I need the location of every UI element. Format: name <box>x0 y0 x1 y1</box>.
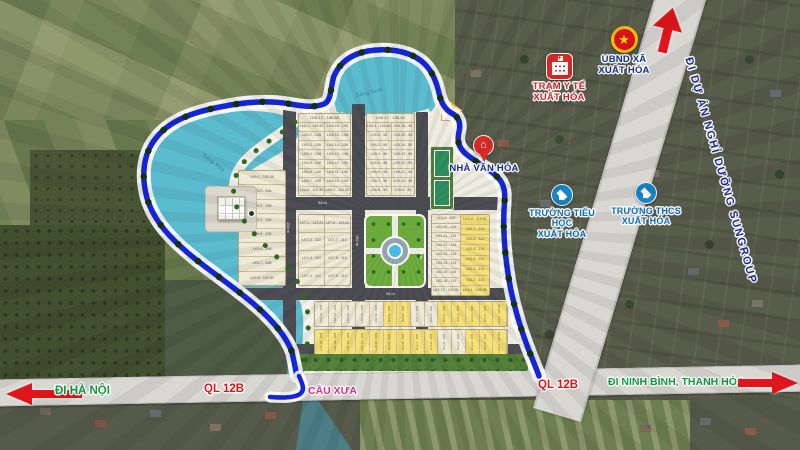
poi-label: NHÀ VĂN HÓA <box>449 164 518 175</box>
poi-label: XUẤT HÓA <box>533 93 586 104</box>
road-label-ql12b-right: QL 12B <box>538 379 578 391</box>
poi-label: XUẤT HÓA <box>598 66 649 77</box>
road-label-di-ha-noi: ĐI HÀ NỘI <box>55 385 110 397</box>
red-dashed-boundary <box>142 53 537 379</box>
poi-truong-tieu-hoc: TRƯỜNG TIỂU HỌC XUẤT HÓA <box>520 184 604 239</box>
poi-tram-y-te: TRẠM Y TẾ XUẤT HÓA <box>524 53 594 104</box>
blue-border <box>144 50 539 398</box>
road-dimension: 12.5 m <box>364 347 376 351</box>
poi-label: TRƯỜNG TIỂU HỌC <box>520 208 604 229</box>
poi-label: TRƯỜNG THCS <box>611 206 681 216</box>
road-label-cau-xua: CẦU XƯA <box>308 385 357 397</box>
poi-label: XUẤT HÓA <box>611 216 681 226</box>
road-dimension: 152 m <box>355 235 359 246</box>
poi-ubnd-xa: ★ UBND XÃ XUẤT HÓA <box>592 26 656 77</box>
road-dimension: 34 m <box>318 201 327 205</box>
poi-label: XUẤT HÓA <box>520 229 604 239</box>
arrow-right-icon <box>738 372 800 394</box>
graduation-icon <box>551 184 573 206</box>
shore-trees-dots <box>234 122 309 370</box>
pin-home-icon: ⌂ <box>473 135 495 163</box>
graduation-icon <box>635 182 657 204</box>
road-label-di-ninh-binh: ĐI NINH BÌNH, THANH HÓA <box>608 376 745 388</box>
road-dimension: 152 m <box>419 248 423 259</box>
poi-nha-van-hoa: ⌂ NHÀ VĂN HÓA <box>446 135 522 175</box>
road-dimension: 94 m <box>386 292 395 296</box>
masterplan-map: LK8-17 - 186.88LK8-1 - 145.92LK8-2 - 108… <box>0 0 800 450</box>
poi-truong-thcs: TRƯỜNG THCS XUẤT HÓA <box>608 182 684 227</box>
national-emblem-icon: ★ <box>611 26 638 53</box>
hospital-icon <box>546 53 573 80</box>
road-dimension: 154 m <box>286 222 290 233</box>
road-label-ql12b-left: QL 12B <box>204 383 244 395</box>
